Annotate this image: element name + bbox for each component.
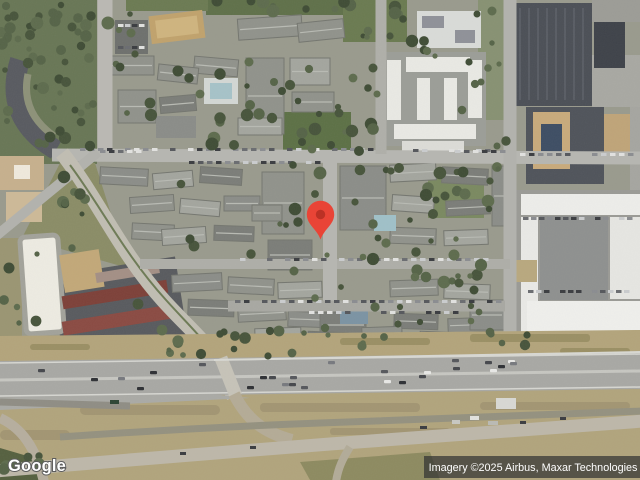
- svg-text:Imagery ©2025 Airbus, Maxar Te: Imagery ©2025 Airbus, Maxar Technologies: [429, 462, 638, 474]
- svg-text:Google: Google: [8, 457, 66, 475]
